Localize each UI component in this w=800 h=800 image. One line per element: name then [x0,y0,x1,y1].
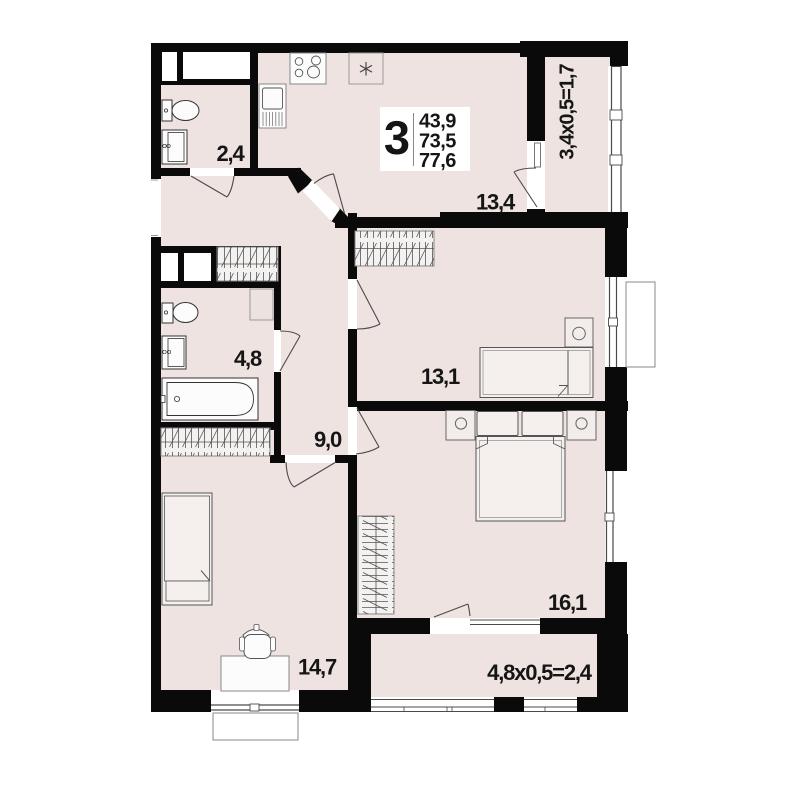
svg-text:77,6: 77,6 [419,150,456,172]
svg-text:43,9: 43,9 [419,111,456,133]
svg-text:13,4: 13,4 [476,190,516,215]
svg-text:3,4х0,5=1,7: 3,4х0,5=1,7 [557,64,579,160]
svg-text:3: 3 [384,111,410,164]
svg-text:2,4: 2,4 [217,141,246,166]
svg-text:4,8: 4,8 [234,346,262,371]
svg-text:4,8х0,5=2,4: 4,8х0,5=2,4 [487,660,593,685]
svg-text:16,1: 16,1 [548,590,587,615]
svg-text:13,1: 13,1 [421,364,460,389]
svg-text:9,0: 9,0 [314,427,342,452]
svg-text:14,7: 14,7 [298,655,337,680]
